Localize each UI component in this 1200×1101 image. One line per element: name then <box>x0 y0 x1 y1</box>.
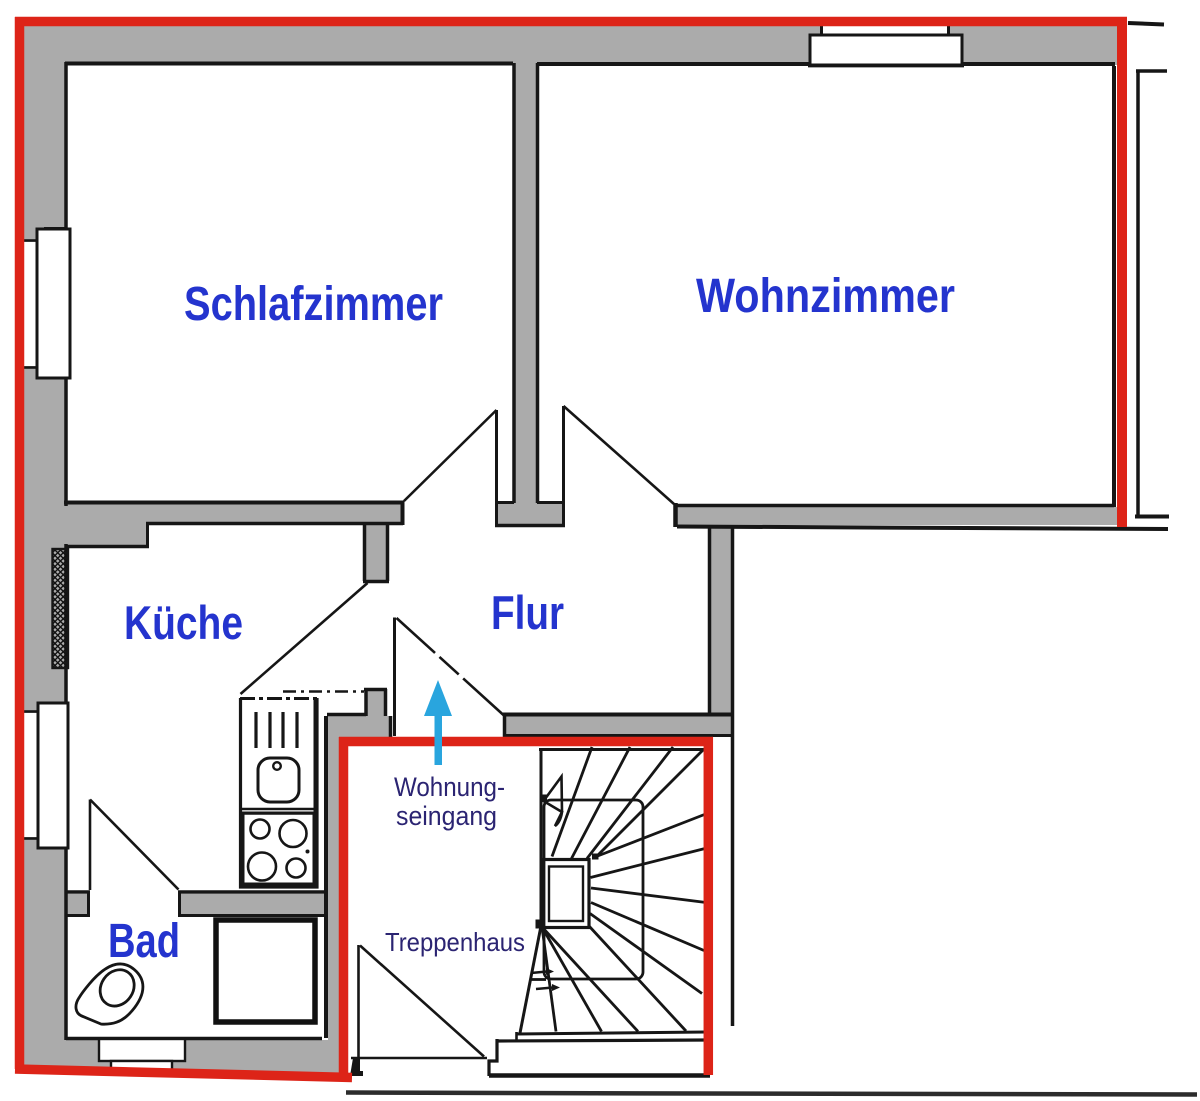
svg-text:Flur: Flur <box>491 586 564 639</box>
svg-text:Bad: Bad <box>108 915 180 968</box>
svg-text:seingang: seingang <box>396 801 497 831</box>
svg-text:Treppenhaus: Treppenhaus <box>385 927 525 957</box>
svg-text:Wohnung-: Wohnung- <box>394 772 505 802</box>
svg-text:Küche: Küche <box>124 596 243 649</box>
svg-text:Schlafzimmer: Schlafzimmer <box>184 278 443 331</box>
svg-text:Wohnzimmer: Wohnzimmer <box>696 270 955 323</box>
